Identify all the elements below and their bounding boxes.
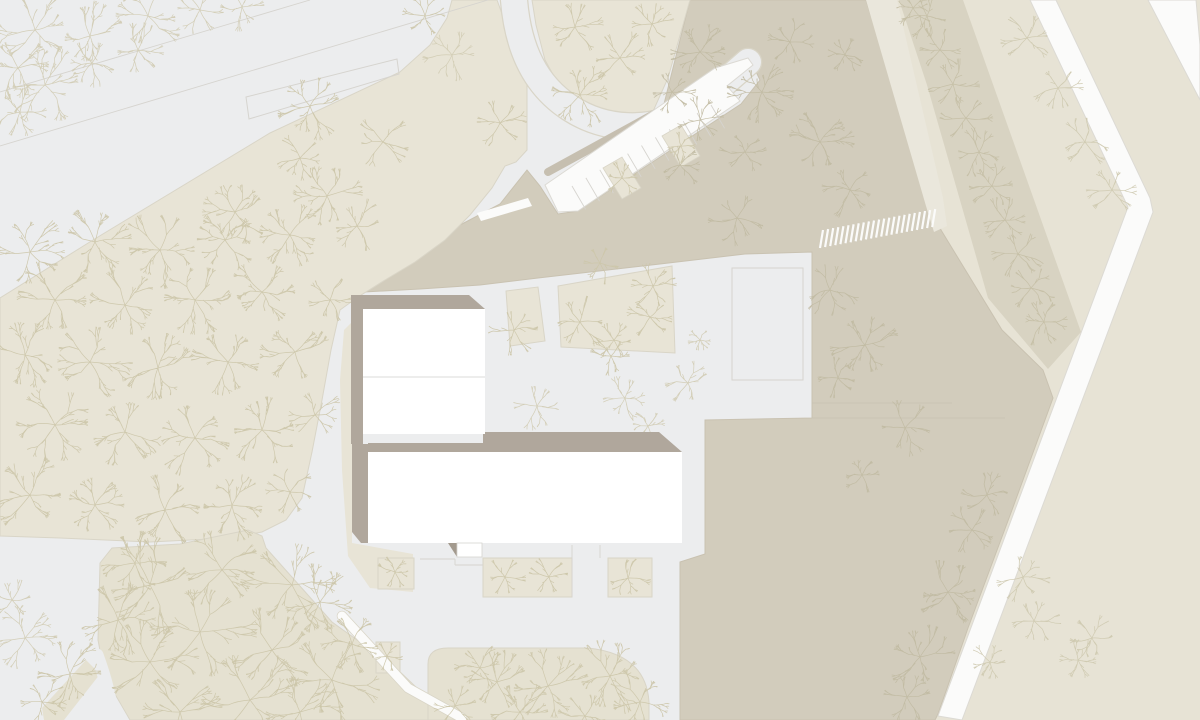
site-plan-drawing — [0, 0, 1200, 720]
entrance-canopy — [457, 543, 482, 557]
upper-block-west-shadow — [351, 295, 363, 444]
lower-block-west-shadow — [352, 444, 368, 543]
upper-block-roof-shadow — [351, 295, 485, 309]
upper-block — [363, 309, 485, 434]
lower-block — [368, 452, 682, 543]
site-plan-stage — [0, 0, 1200, 720]
